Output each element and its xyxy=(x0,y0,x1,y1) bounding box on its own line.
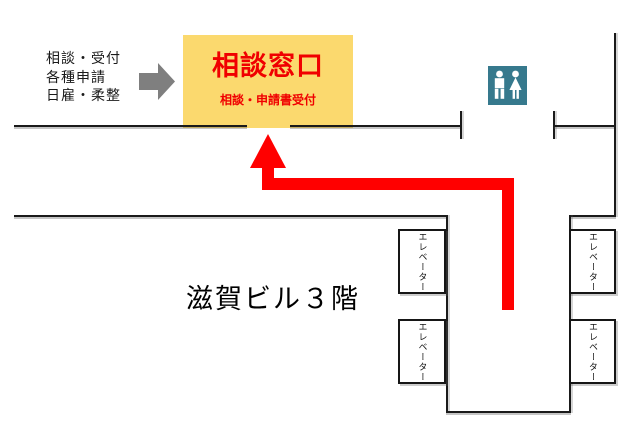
wall-right-outer xyxy=(614,33,616,217)
restroom-icon xyxy=(488,66,527,105)
elevator-label: エレベーター xyxy=(588,322,597,382)
wall-hall-left xyxy=(446,215,448,413)
annotation-line-2: 各種申請 xyxy=(46,68,121,87)
elevator-box-lower-right: エレベーター xyxy=(569,319,616,384)
building-label: 滋賀ビル３階 xyxy=(186,277,360,316)
elevator-label: エレベーター xyxy=(588,232,597,292)
consultation-window-box: 相談窓口 相談・申請書受付 xyxy=(183,35,353,128)
consultation-subtitle: 相談・申請書受付 xyxy=(183,91,353,108)
right-arrow-icon xyxy=(139,62,176,101)
elevator-box-lower-left: エレベーター xyxy=(398,319,446,384)
elevator-box-upper-right: エレベーター xyxy=(569,229,616,294)
wall-middle-left xyxy=(14,215,448,217)
floor-map: 相談・受付 各種申請 日雇・柔整 相談窓口 相談・申請書受付 エレベーター xyxy=(0,0,633,428)
consultation-title: 相談窓口 xyxy=(183,52,353,82)
wall-top-middle xyxy=(290,125,461,127)
elevator-box-upper-left: エレベーター xyxy=(398,229,446,294)
elevator-label: エレベーター xyxy=(418,322,427,382)
elevator-label: エレベーター xyxy=(418,232,427,292)
annotation-line-3: 日雇・柔整 xyxy=(46,86,121,105)
wall-top-left xyxy=(14,125,247,127)
wall-middle-right xyxy=(569,215,616,217)
wall-top-right xyxy=(554,125,616,127)
service-annotation: 相談・受付 各種申請 日雇・柔整 xyxy=(46,49,121,105)
wall-hall-bottom xyxy=(446,411,571,413)
wall-opening-tick-left xyxy=(460,111,462,139)
annotation-line-1: 相談・受付 xyxy=(46,49,121,68)
